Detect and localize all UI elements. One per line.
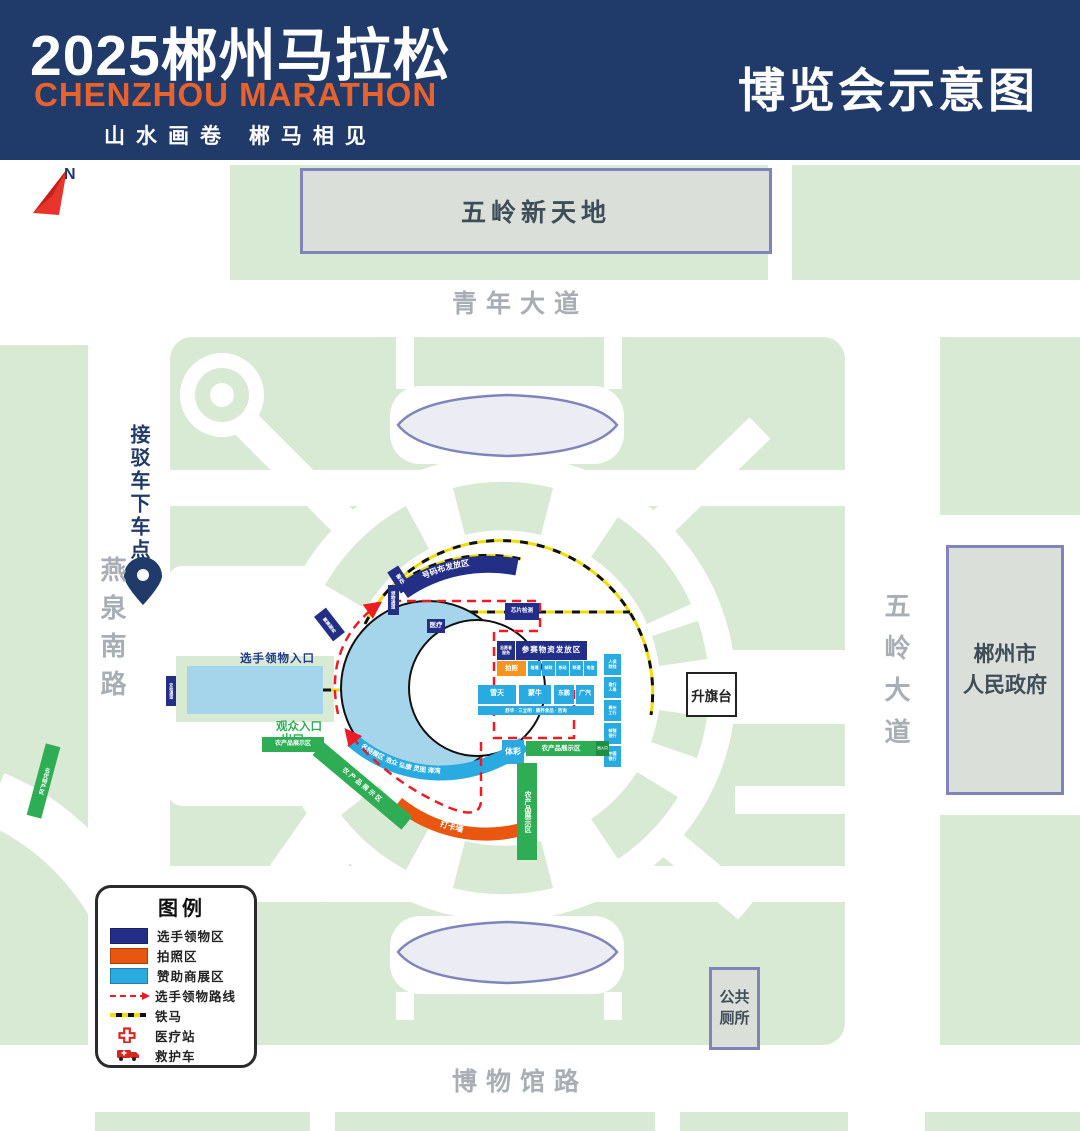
event-slogan: 山水画卷 郴马相见 [104, 120, 377, 150]
agri-gate-tag: 出入口 [596, 741, 609, 756]
sponsor-booth-gac: 广汽 [576, 685, 594, 704]
sponsor-side-booth: 人保 财险 [604, 654, 621, 675]
street-wuling-avenue: 五岭大道 [878, 592, 915, 760]
barrier-dash-icon [110, 1013, 146, 1017]
roundabout [195, 368, 249, 422]
legend-item-photo-zone: 拍照区 [110, 946, 198, 966]
legend-item-sponsor-zone: 赞助商展区 [110, 966, 225, 986]
public-toilet: 公共 厕所 [709, 967, 760, 1050]
sponsor-booth-dongpeng: 东鹏 [554, 685, 574, 704]
route-dash-icon [110, 995, 146, 997]
booth-security-channel: 安检通道 [166, 676, 176, 706]
north-arrow-icon [33, 169, 67, 215]
sponsor-booth: 联通 [570, 661, 583, 676]
legend-item-pickup-zone: 选手领物区 [110, 926, 225, 946]
street-yanquan-south-road: 燕泉南路 [94, 556, 131, 708]
legend-title: 图例 [158, 892, 206, 921]
header-banner: 2025郴州马拉松 CHENZHOU MARATHON 山水画卷 郴马相见 博览… [0, 0, 1080, 160]
agri-display-bar-d1: 农产品展示区 [262, 737, 324, 752]
ambulance-icon [110, 1047, 146, 1063]
booth-sports-lottery: 体彩 [502, 740, 524, 764]
sponsor-side-booth: 郴州 工行 [604, 700, 621, 721]
legend-item-ambulance: 救护车 [110, 1045, 196, 1065]
flag-stage: 升旗台 [686, 672, 737, 717]
booth-medical: 医疗 [427, 619, 445, 633]
map-title: 博览会示意图 [738, 52, 1038, 121]
street-qingnian-avenue: 青年大道 [380, 284, 660, 320]
booth-photo: 拍照 [497, 661, 526, 676]
navy-swatch [110, 928, 148, 944]
sponsor-booth: 电信 [584, 661, 597, 676]
booth-volunteer: 志愿者 服务 [497, 641, 515, 660]
sponsor-strip: 舒华 · 三立明 · 康养食品 · 咨询 [478, 706, 594, 715]
booth-pickup-channel: 领物通道 [388, 585, 399, 615]
street-museum-road: 博物馆路 [380, 1062, 660, 1098]
booth-supplies-area: 参赛物资发放区 [516, 641, 587, 660]
legend-item-medical: 医疗站 [110, 1025, 196, 1045]
agri-display-bar-v: 农产品展示区 [517, 763, 537, 860]
building-government: 郴州市 人民政府 [946, 545, 1064, 795]
legend-panel: 图例 选手领物区 拍照区 赞助商展区 选手领物路线 铁马 医疗站 [95, 885, 257, 1068]
sponsor-side-booth: 建行 人寿 [604, 677, 621, 698]
booth-chip-check: 芯片检测 [505, 603, 539, 620]
expo-map-poster: 号码布发放区 名特展区 浩众 弘康 灵图 津湾 打卡墙 2025郴州马拉松 CH… [0, 0, 1080, 1131]
sponsor-booth: 邮政 [542, 661, 555, 676]
medical-cross-icon [110, 1027, 146, 1043]
legend-item-route: 选手领物路线 [110, 986, 236, 1006]
blue-swatch [110, 968, 148, 984]
sponsor-booth: 裕湘 [528, 661, 541, 676]
sponsor-booth-xuetian: 雪天 [478, 685, 516, 704]
legend-item-barrier: 铁马 [110, 1005, 182, 1025]
shuttle-drop-off-label: 接驳车下车点 [124, 424, 153, 562]
sponsor-booth: 移动 [556, 661, 569, 676]
north-label: N [64, 166, 76, 184]
event-title-en: CHENZHOU MARATHON [34, 76, 437, 114]
agri-display-bar-h: 农产品展示区 [526, 741, 596, 756]
sponsor-booth-mengniu: 蒙牛 [519, 685, 551, 704]
orange-swatch [110, 948, 148, 964]
athlete-pickup-entrance-label: 选手领物入口 [240, 650, 315, 666]
building-wuling-xintiandi: 五岭新天地 [300, 168, 772, 254]
